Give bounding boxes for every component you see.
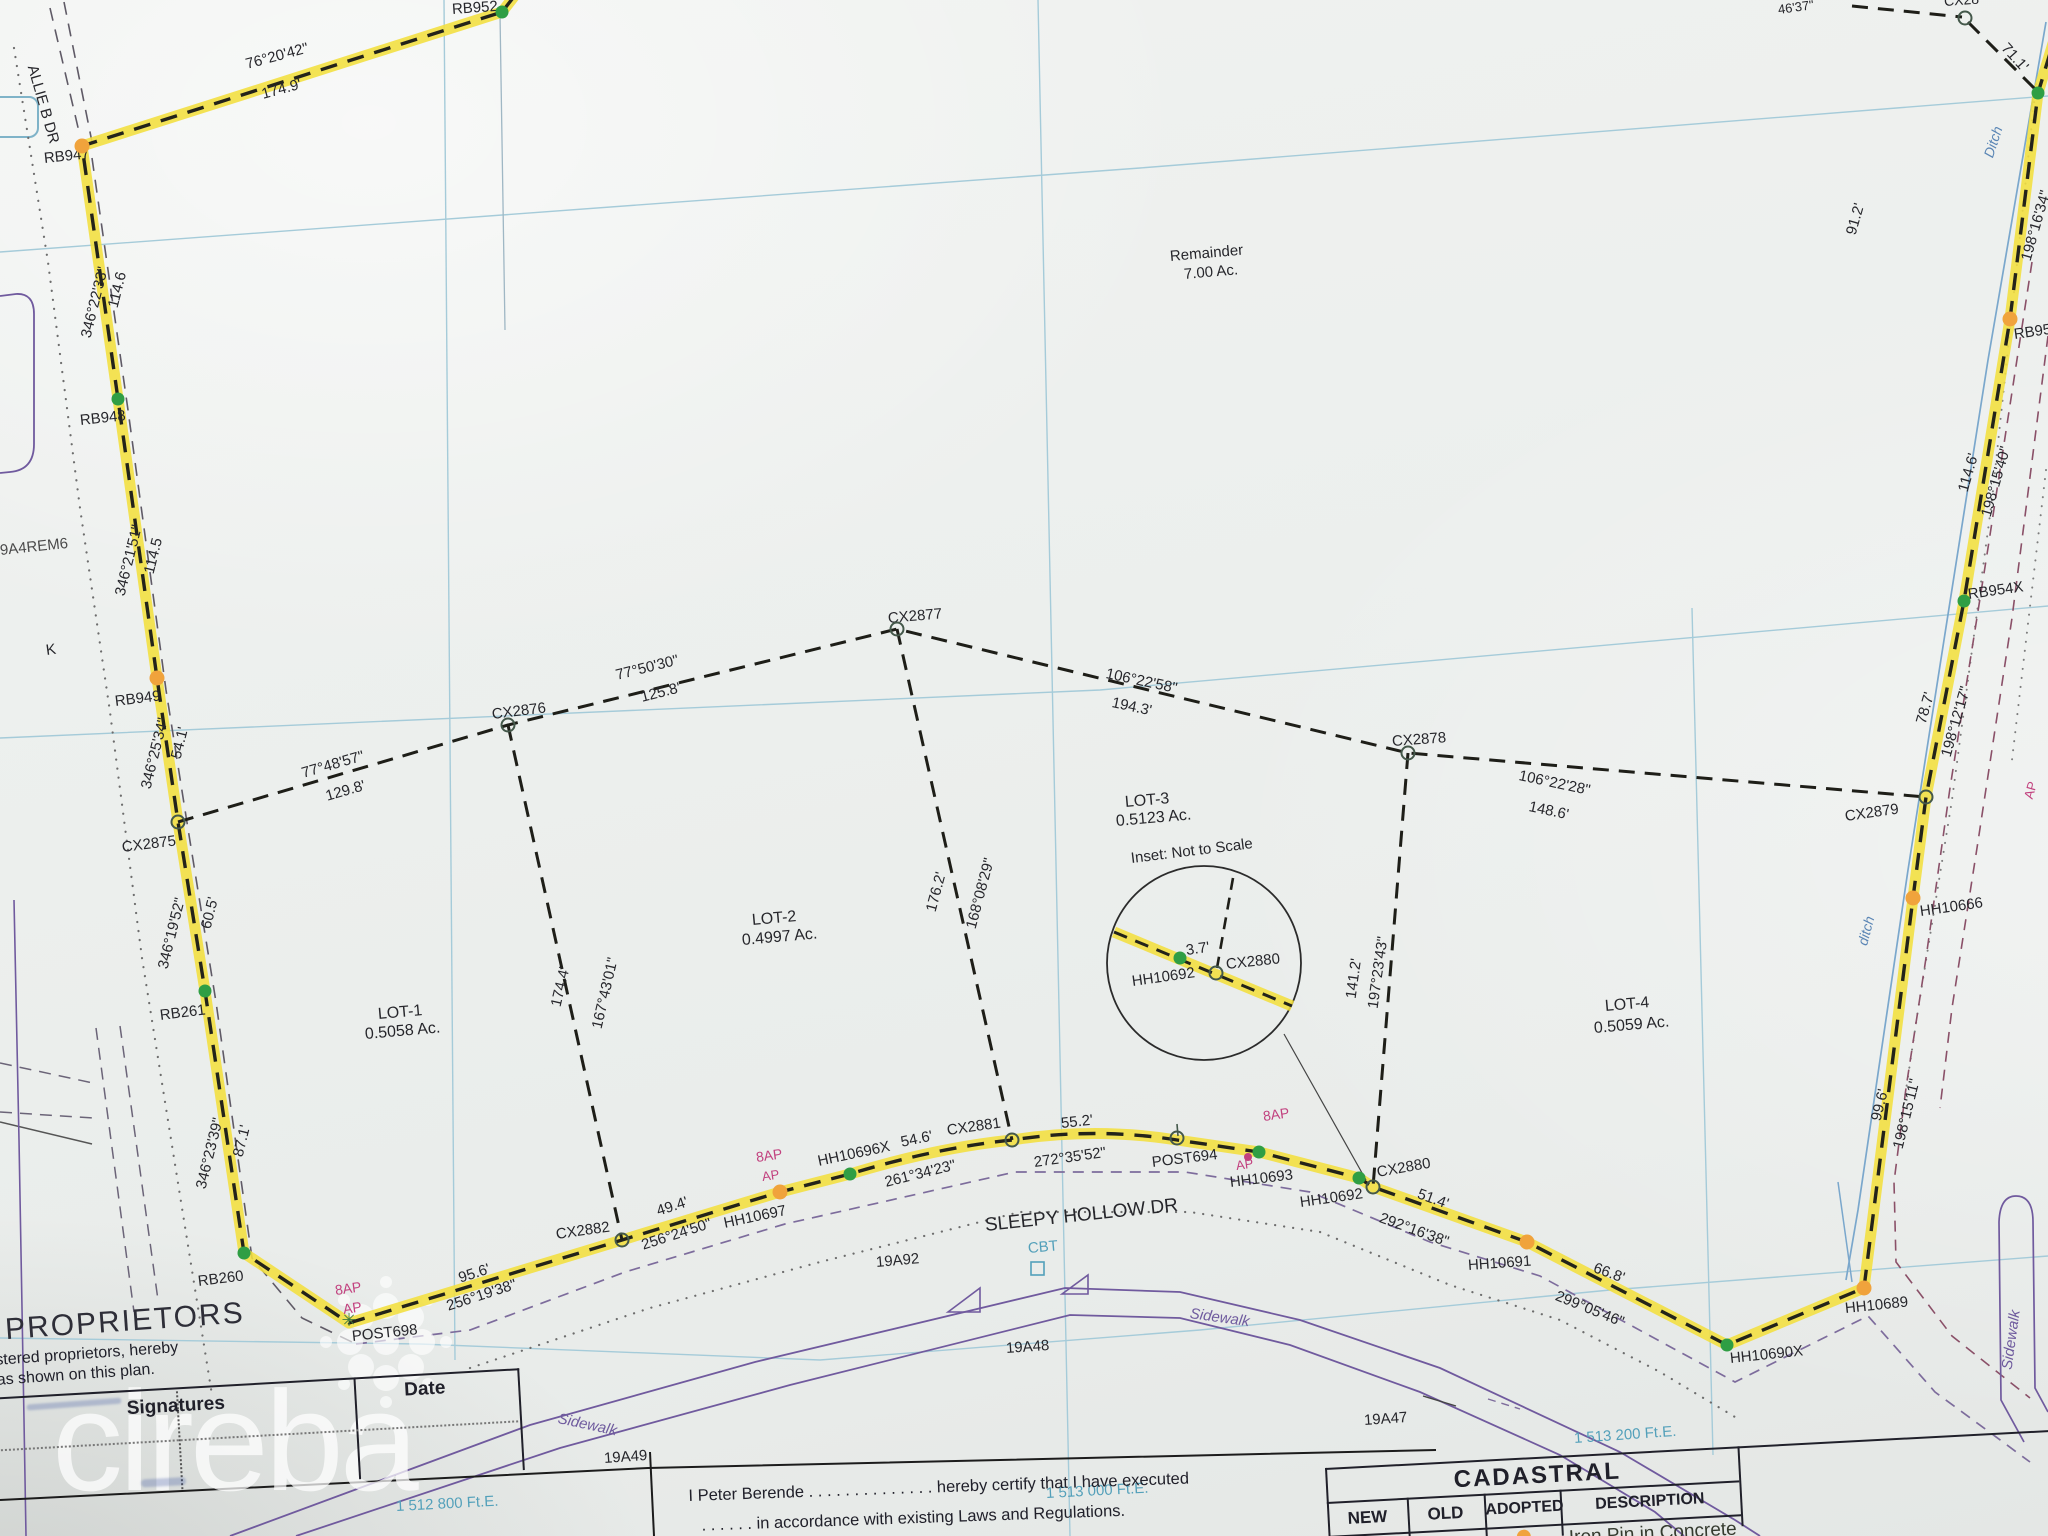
signatures-column-header: Signatures (126, 1393, 225, 1420)
cadastral-header-adopted: ADOPTED (1485, 1498, 1564, 1520)
survey-monument-point (112, 393, 125, 406)
survey-plan-page: cireba RB95276°20'42"174.9'RB947346°22'3… (0, 0, 2048, 1536)
survey-monument-point (1005, 1133, 1020, 1148)
survey-monument-point (501, 718, 516, 733)
map-label: 8AP (755, 1146, 783, 1164)
map-label: 8AP (334, 1279, 362, 1297)
survey-monument-point (1520, 1235, 1535, 1250)
survey-monument-point (1170, 1131, 1185, 1146)
survey-monument-point (1174, 952, 1187, 965)
survey-monument-point (1919, 790, 1934, 805)
survey-monument-point (773, 1185, 788, 1200)
survey-monument-point (844, 1168, 857, 1181)
cadastral-header-old: OLD (1427, 1503, 1464, 1525)
ink-smudge (26, 1398, 121, 1411)
survey-monument-point (615, 1233, 630, 1248)
map-label: CX2878 (1391, 730, 1446, 749)
map-label: RB952 (451, 0, 498, 17)
survey-monument-point (1353, 1172, 1366, 1185)
ink-smudge (141, 1477, 186, 1487)
map-label: HH10691 (1467, 1254, 1531, 1273)
survey-monument-point (75, 139, 90, 154)
survey-monument-point (1209, 966, 1224, 981)
map-label: CBT (1027, 1238, 1058, 1256)
survey-monument-point: ✳ (341, 1311, 356, 1329)
survey-monument-point (1857, 1281, 1872, 1296)
map-label: AP (761, 1168, 780, 1183)
adopted-monument-dot (1517, 1529, 1532, 1536)
survey-monument-point (1366, 1180, 1381, 1195)
map-label: 19A92 (875, 1251, 920, 1270)
map-label: 8AP (1262, 1105, 1290, 1123)
map-label: 19A47 (1363, 1410, 1407, 1428)
survey-monument-point (1958, 595, 1971, 608)
cadastral-header-description: DESCRIPTION (1595, 1490, 1705, 1514)
survey-monument-point (496, 6, 509, 19)
map-label: CX28 (1944, 0, 1980, 8)
survey-monument-point (150, 671, 165, 686)
map-label: 19A49 (603, 1448, 647, 1466)
survey-monument-point (199, 985, 212, 998)
survey-monument-point (890, 622, 905, 637)
map-label: 19A48 (1005, 1338, 1049, 1356)
survey-monument-point (1906, 891, 1921, 906)
survey-monument-point (1401, 746, 1416, 761)
survey-monument-point (1958, 11, 1973, 26)
map-label: 3.7' (1185, 940, 1211, 958)
date-column-header: Date (404, 1377, 446, 1401)
map-label: K (45, 642, 57, 658)
survey-monument-point (2032, 87, 2045, 100)
survey-monument-point (2003, 312, 2018, 327)
map-label: RB95 (2013, 322, 2048, 342)
cadastral-header-new: NEW (1347, 1507, 1388, 1529)
survey-monument-point (171, 815, 186, 830)
survey-monument-point (238, 1247, 251, 1260)
survey-monument-point (1721, 1339, 1734, 1352)
map-label: 55.2' (1060, 1113, 1093, 1131)
survey-monument-point (1253, 1146, 1266, 1159)
survey-monument-point (1244, 1153, 1252, 1161)
